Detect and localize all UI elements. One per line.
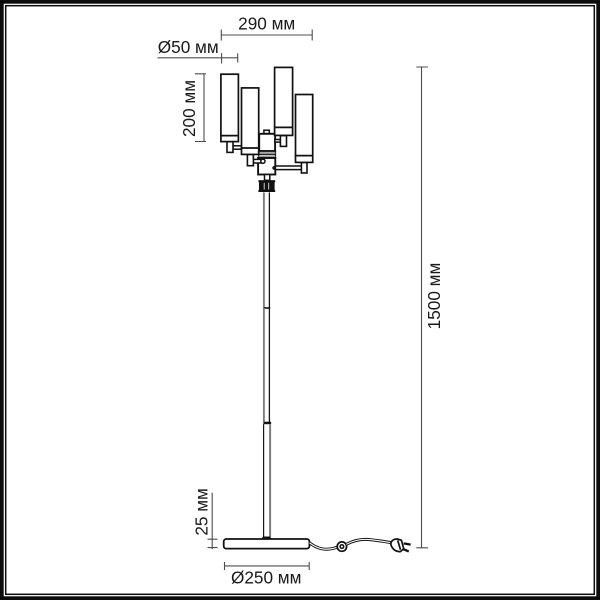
svg-text:Ø250 мм: Ø250 мм xyxy=(231,567,301,587)
svg-text:Ø50 мм: Ø50 мм xyxy=(158,37,219,57)
svg-text:200 мм: 200 мм xyxy=(179,80,199,137)
svg-text:1500 мм: 1500 мм xyxy=(424,263,444,330)
svg-text:290 мм: 290 мм xyxy=(238,13,295,33)
svg-text:25 мм: 25 мм xyxy=(191,488,211,536)
